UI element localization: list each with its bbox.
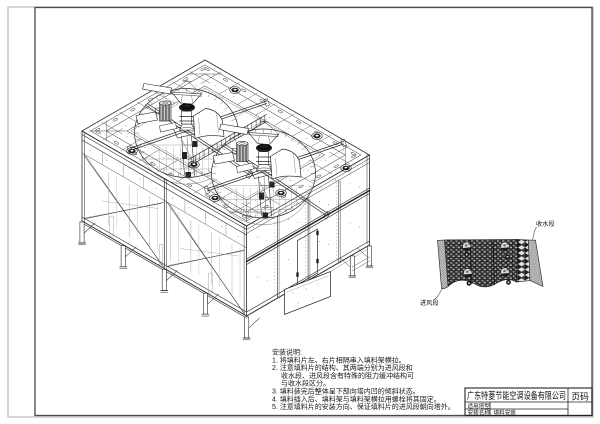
svg-text:填料安装: 填料安装 bbox=[494, 409, 517, 417]
svg-text:安装名称: 安装名称 bbox=[468, 409, 491, 417]
svg-text:适用塔型: 适用塔型 bbox=[468, 402, 491, 410]
svg-text:5. 注意填料片的安装方向、保证填料片的进风段朝向塔外。: 5. 注意填料片的安装方向、保证填料片的进风段朝向塔外。 bbox=[272, 402, 455, 411]
svg-text:收水段: 收水段 bbox=[536, 220, 555, 228]
svg-text:收水段、进风段含有特殊的阻力缓冲结构可: 收水段、进风段含有特殊的阻力缓冲结构可 bbox=[281, 371, 414, 380]
svg-text:广东特菱节能空调设备有限公司: 广东特菱节能空调设备有限公司 bbox=[467, 390, 566, 401]
svg-text:2. 注意填料片的结构、其两端分别为进风段和: 2. 注意填料片的结构、其两端分别为进风段和 bbox=[272, 363, 413, 372]
svg-text:安装说明:: 安装说明: bbox=[272, 348, 302, 357]
svg-text:页码: 页码 bbox=[571, 392, 589, 402]
svg-text:4. 填料插入后、填料架与填料架横拉用螺栓将其固定。: 4. 填料插入后、填料架与填料架横拉用螺栓将其固定。 bbox=[272, 394, 441, 403]
svg-text:与收水段区分。: 与收水段区分。 bbox=[281, 379, 330, 388]
svg-text:1. 将填料片左、右片相隔串入填料架横拉。: 1. 将填料片左、右片相隔串入填料架横拉。 bbox=[272, 355, 406, 364]
svg-text:进风段: 进风段 bbox=[420, 299, 439, 307]
svg-text:3. 填料装完后整体呈下部向塔内凹的倾斜状态。: 3. 填料装完后整体呈下部向塔内凹的倾斜状态。 bbox=[272, 387, 420, 396]
